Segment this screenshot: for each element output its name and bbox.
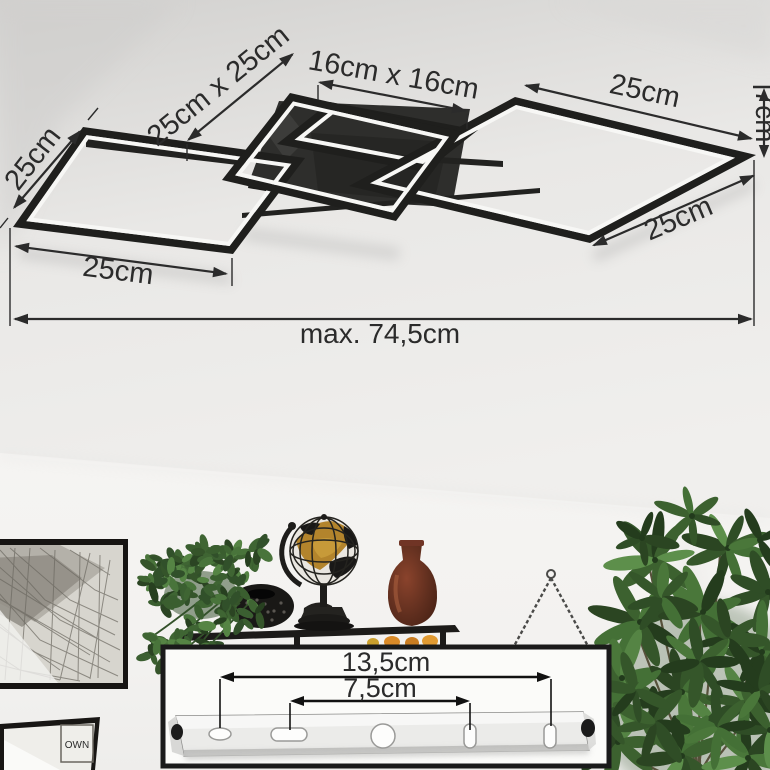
- svg-text:7,5cm: 7,5cm: [343, 673, 417, 703]
- svg-text:OWN: OWN: [65, 740, 89, 751]
- svg-text:7cm: 7cm: [750, 90, 770, 143]
- svg-text:max. 74,5cm: max. 74,5cm: [300, 318, 460, 349]
